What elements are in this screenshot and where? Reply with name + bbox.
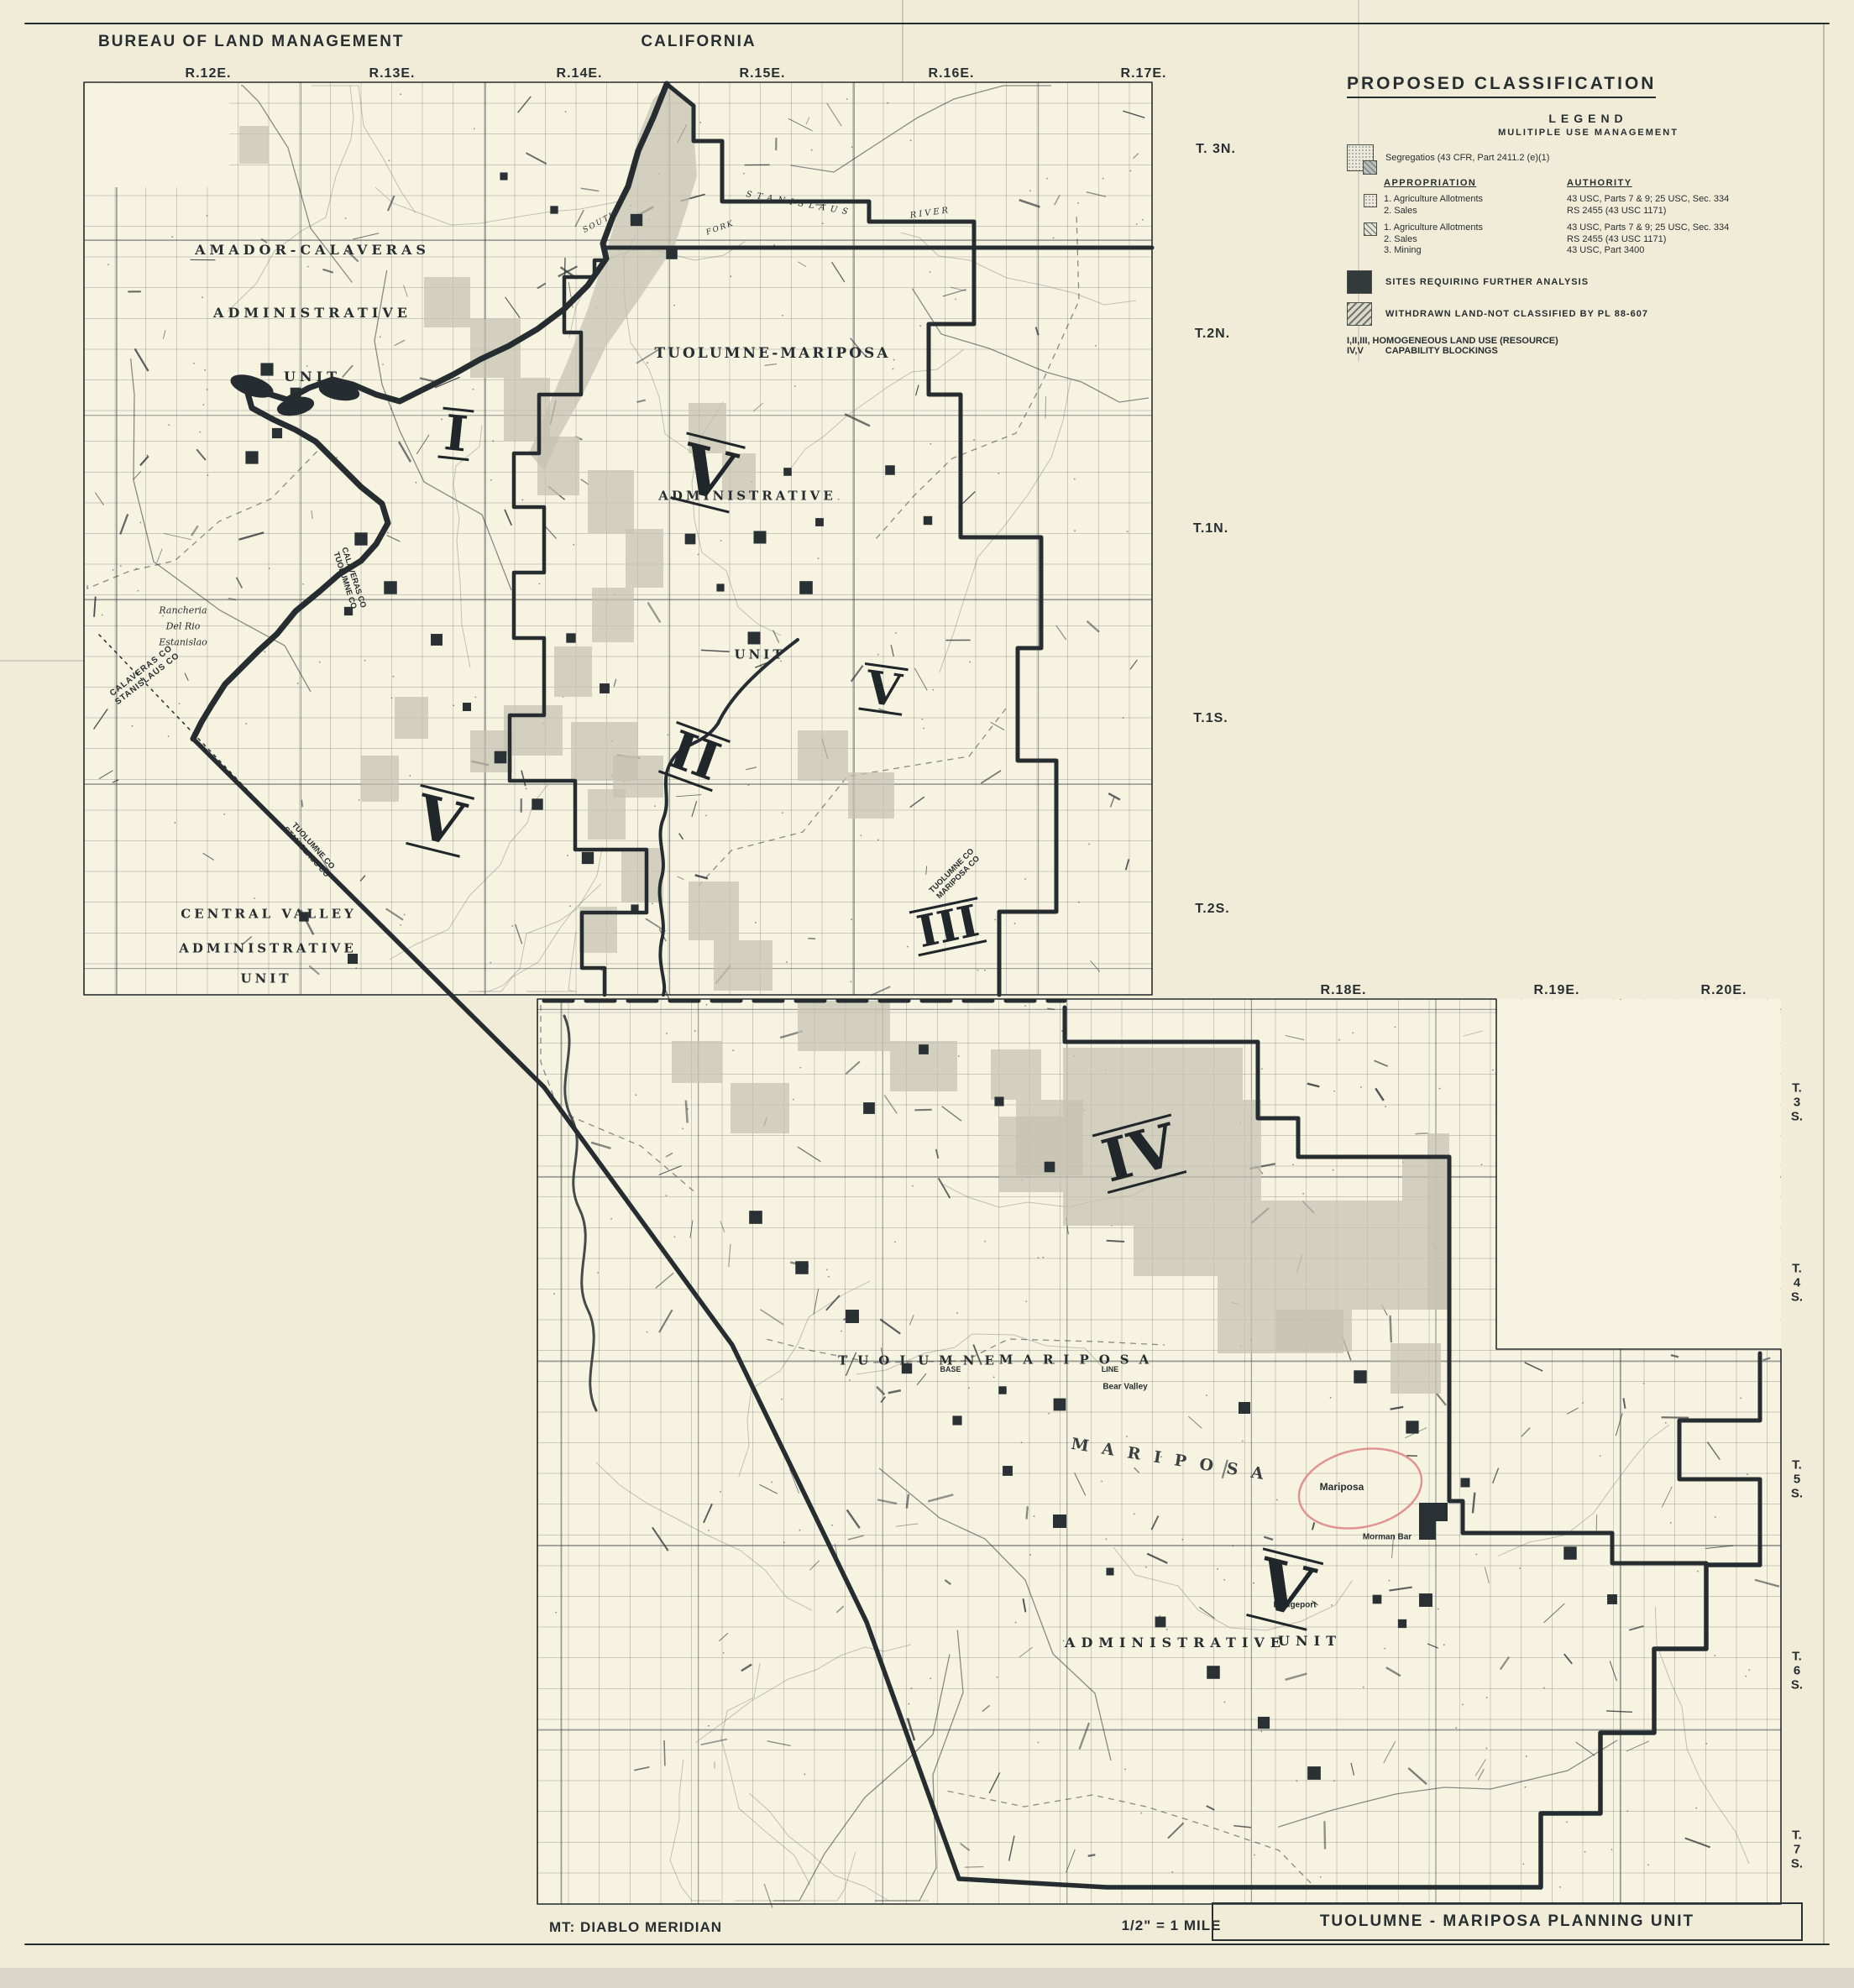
homogeneous-note: I,II,III, HOMOGENEOUS LAND USE (RESOURCE…: [1347, 336, 1830, 356]
blocking-numeral: V: [858, 662, 908, 716]
range-label: R.20E.: [1701, 983, 1747, 998]
township-label: T.1N.: [1193, 521, 1228, 536]
withdrawn-label: WITHDRAWN LAND-NOT CLASSIFIED BY PL 88-6…: [1385, 309, 1648, 319]
county-name-tuolumne: TUOLUMNE: [838, 1353, 1004, 1368]
sheet-title: TUOLUMNE - MARIPOSA PLANNING UNIT: [1320, 1912, 1694, 1930]
legend: PROPOSED CLASSIFICATION LEGEND MULITIPLE…: [1347, 74, 1830, 356]
township-label: T.3S.: [1791, 1081, 1803, 1124]
base-line-label: BASE: [940, 1365, 961, 1373]
authority-header: AUTHORITY: [1567, 178, 1632, 188]
range-label: R.17E.: [1121, 66, 1167, 81]
township-label: T.4S.: [1791, 1262, 1803, 1305]
legend-row: 1. Agriculture Allotments2. Sales 43 USC…: [1384, 194, 1830, 217]
town-label-mariposa: Mariposa: [1320, 1482, 1364, 1494]
sites-label: SITES REQUIRING FURTHER ANALYSIS: [1385, 277, 1589, 287]
legend-title: PROPOSED CLASSIFICATION: [1347, 74, 1656, 98]
range-label: R.18E.: [1321, 983, 1367, 998]
scan-edge: [0, 1968, 1854, 1988]
agency-title: BUREAU OF LAND MANAGEMENT: [98, 33, 405, 51]
agriculture-sales-mining-swatch: [1364, 222, 1377, 236]
township-label: T.2S.: [1195, 902, 1229, 917]
amador-calaveras-label: ADMINISTRATIVE: [213, 306, 411, 321]
range-label: R.19E.: [1534, 983, 1580, 998]
range-label: R.16E.: [929, 66, 975, 81]
township-label: T.7S.: [1791, 1828, 1803, 1871]
range-label: R.12E.: [186, 66, 232, 81]
township-label: T.2N.: [1195, 327, 1230, 342]
segregation-sub-swatch: [1363, 160, 1377, 175]
sites-swatch: [1347, 270, 1372, 294]
township-label: T. 3N.: [1196, 142, 1236, 157]
township-label: T.1S.: [1193, 711, 1228, 726]
legend-subheading: MULITIPLE USE MANAGEMENT: [1347, 128, 1830, 138]
agriculture-sales-swatch: [1364, 194, 1377, 207]
central-valley-label: UNIT: [241, 971, 292, 986]
rancheria-label: RancheriaDel RioEstanislao: [159, 603, 207, 651]
sheet-title-box: TUOLUMNE - MARIPOSA PLANNING UNIT: [1212, 1902, 1803, 1941]
segregation-swatch: [1347, 144, 1374, 171]
tuolumne-mariposa-unit-label: TUOLUMNE-MARIPOSA: [655, 346, 891, 363]
central-valley-label: ADMINISTRATIVE: [179, 941, 357, 955]
town-label-bear-valley: Bear Valley: [1102, 1382, 1147, 1392]
state-title: CALIFORNIA: [641, 33, 756, 51]
township-label: T.6S.: [1791, 1650, 1803, 1692]
admin-unit-lower-label: ADMINISTRATIVE: [1065, 1635, 1286, 1651]
meridian-label: MT: DIABLO MERIDIAN: [549, 1919, 722, 1936]
blocking-numeral: I: [437, 407, 474, 462]
withdrawn-swatch: [1347, 302, 1372, 326]
map-sheet: BUREAU OF LAND MANAGEMENT CALIFORNIA R.1…: [0, 0, 1854, 1988]
legend-row: 1. Agriculture Allotments2. Sales3. Mini…: [1384, 222, 1830, 257]
range-label: R.15E.: [740, 66, 786, 81]
town-label-morman-bar: Morman Bar: [1363, 1532, 1411, 1542]
amador-calaveras-label: UNIT: [284, 369, 341, 385]
segregation-note: Segregatios (43 CFR, Part 2411.2 (e)(1): [1385, 153, 1549, 163]
base-line-label: LINE: [1102, 1365, 1119, 1373]
tuolumne-mariposa-unit-label: UNIT: [735, 647, 786, 662]
amador-calaveras-label: AMADOR-CALAVERAS: [195, 243, 430, 258]
central-valley-label: CENTRAL VALLEY: [181, 907, 356, 921]
legend-heading: LEGEND: [1347, 112, 1830, 125]
range-label: R.14E.: [557, 66, 603, 81]
range-label: R.13E.: [369, 66, 416, 81]
township-label: T.5S.: [1791, 1458, 1803, 1501]
county-name-mariposa: MARIPOSA: [999, 1352, 1160, 1367]
admin-unit-lower-label: UNIT: [1278, 1634, 1342, 1649]
scale-label: 1/2" = 1 MILE: [1122, 1917, 1222, 1934]
appropriation-header: APPROPRIATION: [1384, 178, 1567, 188]
